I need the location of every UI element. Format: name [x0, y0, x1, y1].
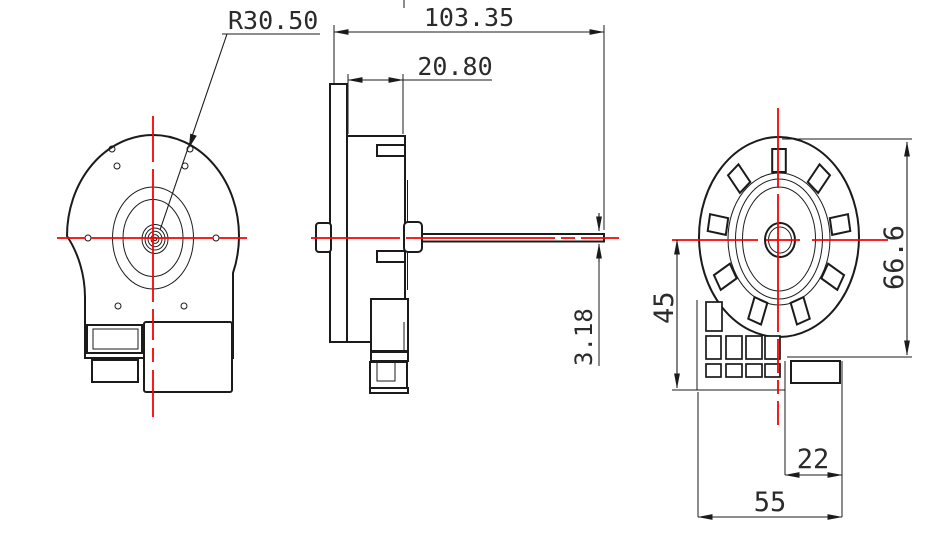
- pin-slot: [706, 302, 722, 331]
- pin-slot: [746, 364, 762, 377]
- drawing-page: R30.50 103.35 20.80 3.18: [0, 0, 926, 537]
- dim-base-width-label: 55: [754, 487, 787, 518]
- pin-slot: [706, 364, 721, 377]
- pin-slot: [746, 336, 762, 359]
- side-terminal-box: [371, 299, 408, 351]
- dim-terminal-offset-label: 22: [797, 444, 830, 475]
- side-terminal-bar: [371, 352, 408, 361]
- dim-center-to-base-label: 45: [649, 291, 680, 324]
- stator-tab: [708, 214, 728, 235]
- dim-shaft-diameter-label: 3.18: [570, 308, 598, 366]
- dimension-body-width: 20.80: [348, 52, 493, 134]
- rear-terminal-block: [791, 361, 840, 383]
- dimension-center-to-base: 45: [649, 240, 700, 390]
- pin-slot: [706, 336, 721, 359]
- pin-slot: [726, 364, 742, 377]
- front-lower-lug: [92, 360, 138, 382]
- front-view: [57, 116, 247, 417]
- front-base-block: [144, 322, 232, 392]
- side-lower-box-foot: [370, 388, 408, 393]
- side-flange-plate: [330, 84, 347, 342]
- stator-tab: [772, 149, 786, 172]
- rear-view: [672, 108, 888, 425]
- dim-body-height-label: 66.6: [879, 225, 910, 290]
- stator-tab: [830, 214, 850, 235]
- dim-body-width-label: 20.80: [417, 52, 492, 81]
- pin-slot: [726, 336, 742, 359]
- dim-radius-label: R30.50: [228, 6, 318, 35]
- side-top-tab: [377, 145, 405, 156]
- motor-three-view-drawing: R30.50 103.35 20.80 3.18: [0, 0, 926, 537]
- dim-overall-length-label: 103.35: [424, 3, 514, 32]
- dimension-terminal-offset: 22: [785, 361, 842, 517]
- side-lower-box: [370, 362, 407, 388]
- side-shaft-hub: [404, 222, 422, 252]
- side-mid-tab: [377, 251, 405, 262]
